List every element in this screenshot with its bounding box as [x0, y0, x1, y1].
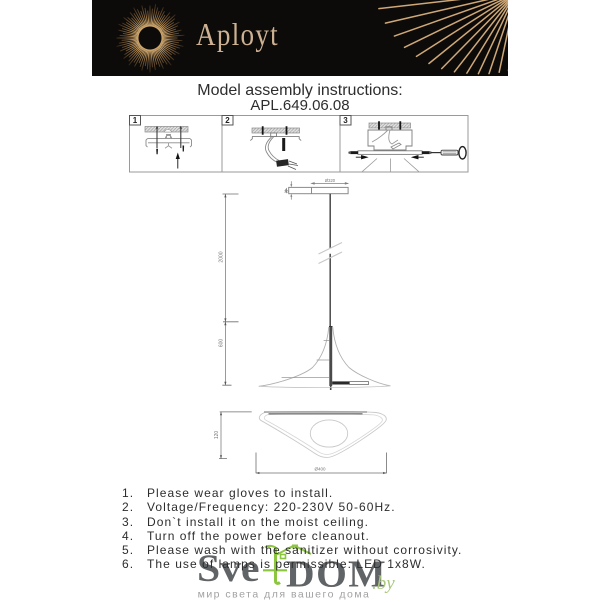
svg-text:2: 2: [225, 116, 230, 125]
svg-text:3: 3: [343, 116, 348, 125]
svg-text:1: 1: [133, 116, 138, 125]
svg-text:Ø320: Ø320: [325, 178, 336, 183]
svg-text:35: 35: [284, 189, 289, 194]
svg-text:120: 120: [214, 431, 220, 440]
svg-text:2000: 2000: [219, 251, 225, 262]
svg-text:Ø400: Ø400: [314, 467, 326, 472]
svg-text:600: 600: [219, 339, 225, 348]
